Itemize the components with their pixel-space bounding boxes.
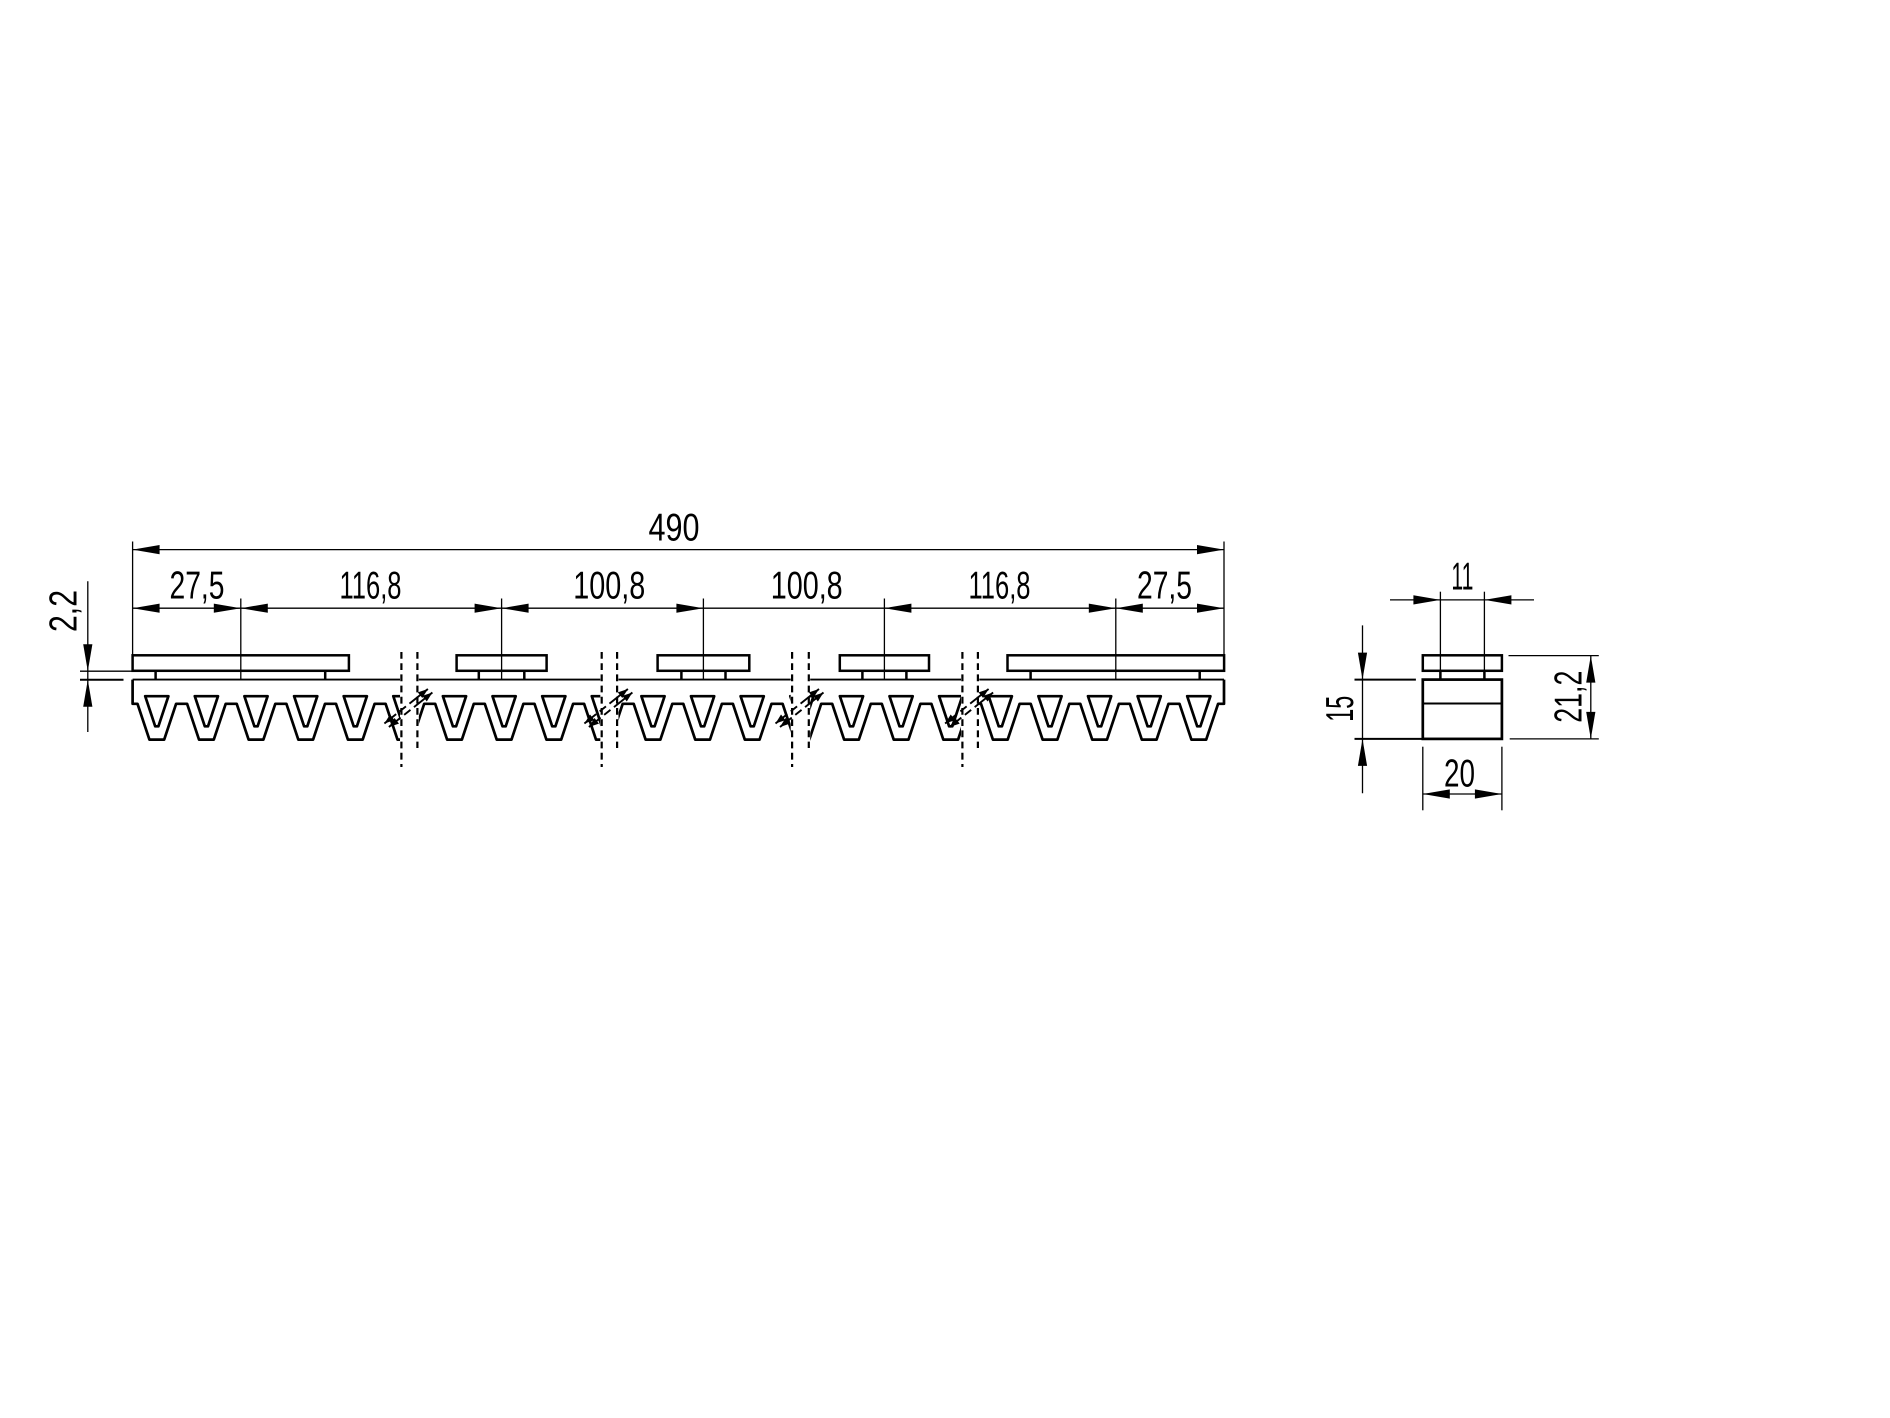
svg-text:21,2: 21,2 [1548,671,1591,723]
svg-text:100,8: 100,8 [573,565,645,608]
svg-text:490: 490 [649,507,700,550]
svg-text:27,5: 27,5 [170,565,225,608]
svg-text:116,8: 116,8 [969,565,1031,608]
svg-text:20: 20 [1444,753,1475,796]
svg-text:2,2: 2,2 [43,590,86,632]
svg-text:116,8: 116,8 [340,565,402,608]
svg-text:100,8: 100,8 [771,565,843,608]
svg-text:11: 11 [1451,556,1473,599]
svg-text:15: 15 [1319,696,1362,722]
svg-text:27,5: 27,5 [1137,565,1192,608]
